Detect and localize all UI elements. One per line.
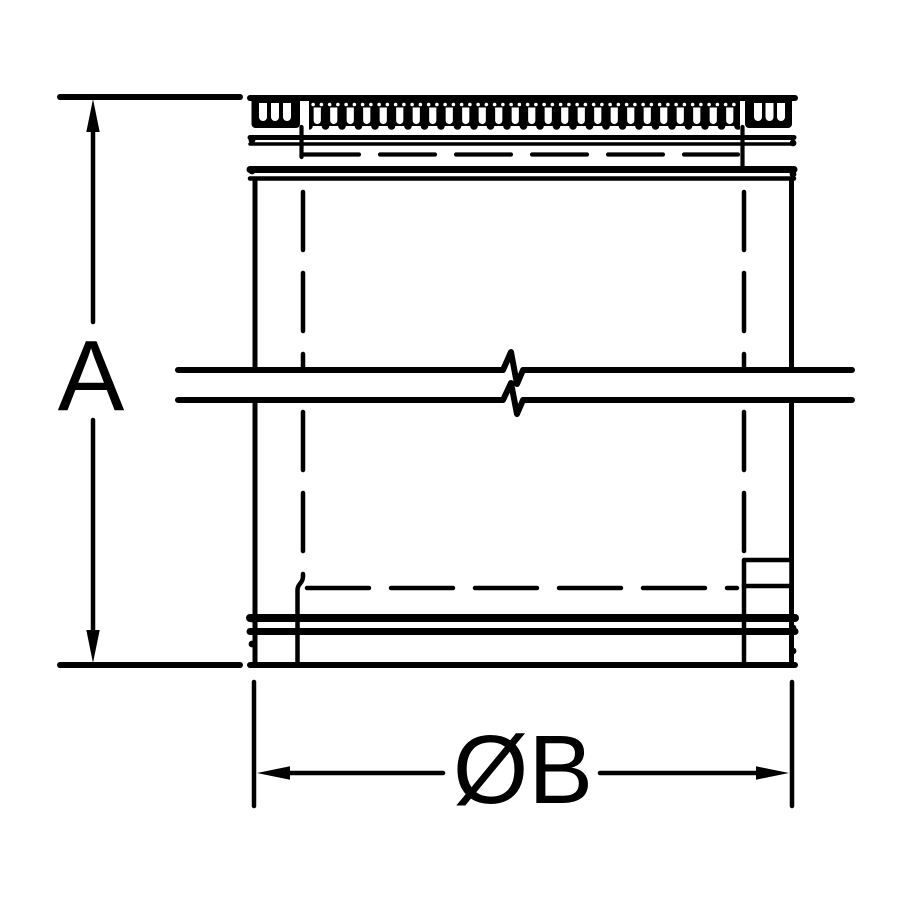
break-line-lower [178, 383, 852, 414]
dimension-b: ØB [254, 682, 792, 824]
pipe-body [255, 180, 792, 665]
dim-a-arrow-down [86, 630, 99, 663]
dim-b-label: ØB [453, 715, 593, 824]
break-line-upper [178, 352, 852, 384]
dim-a-label: A [58, 320, 125, 432]
dim-a-arrow-up [86, 99, 99, 132]
dimension-a: A [58, 97, 240, 665]
break-lines [178, 352, 852, 414]
pipe-section-drawing: A ØB [0, 0, 900, 900]
top-locking-band [249, 95, 797, 179]
bottom-band [249, 588, 797, 665]
dim-b-arrow-right [756, 766, 789, 779]
technical-drawing-canvas: A ØB [0, 0, 900, 900]
lock-tab-detail [744, 560, 792, 586]
dim-b-arrow-left [257, 766, 290, 779]
